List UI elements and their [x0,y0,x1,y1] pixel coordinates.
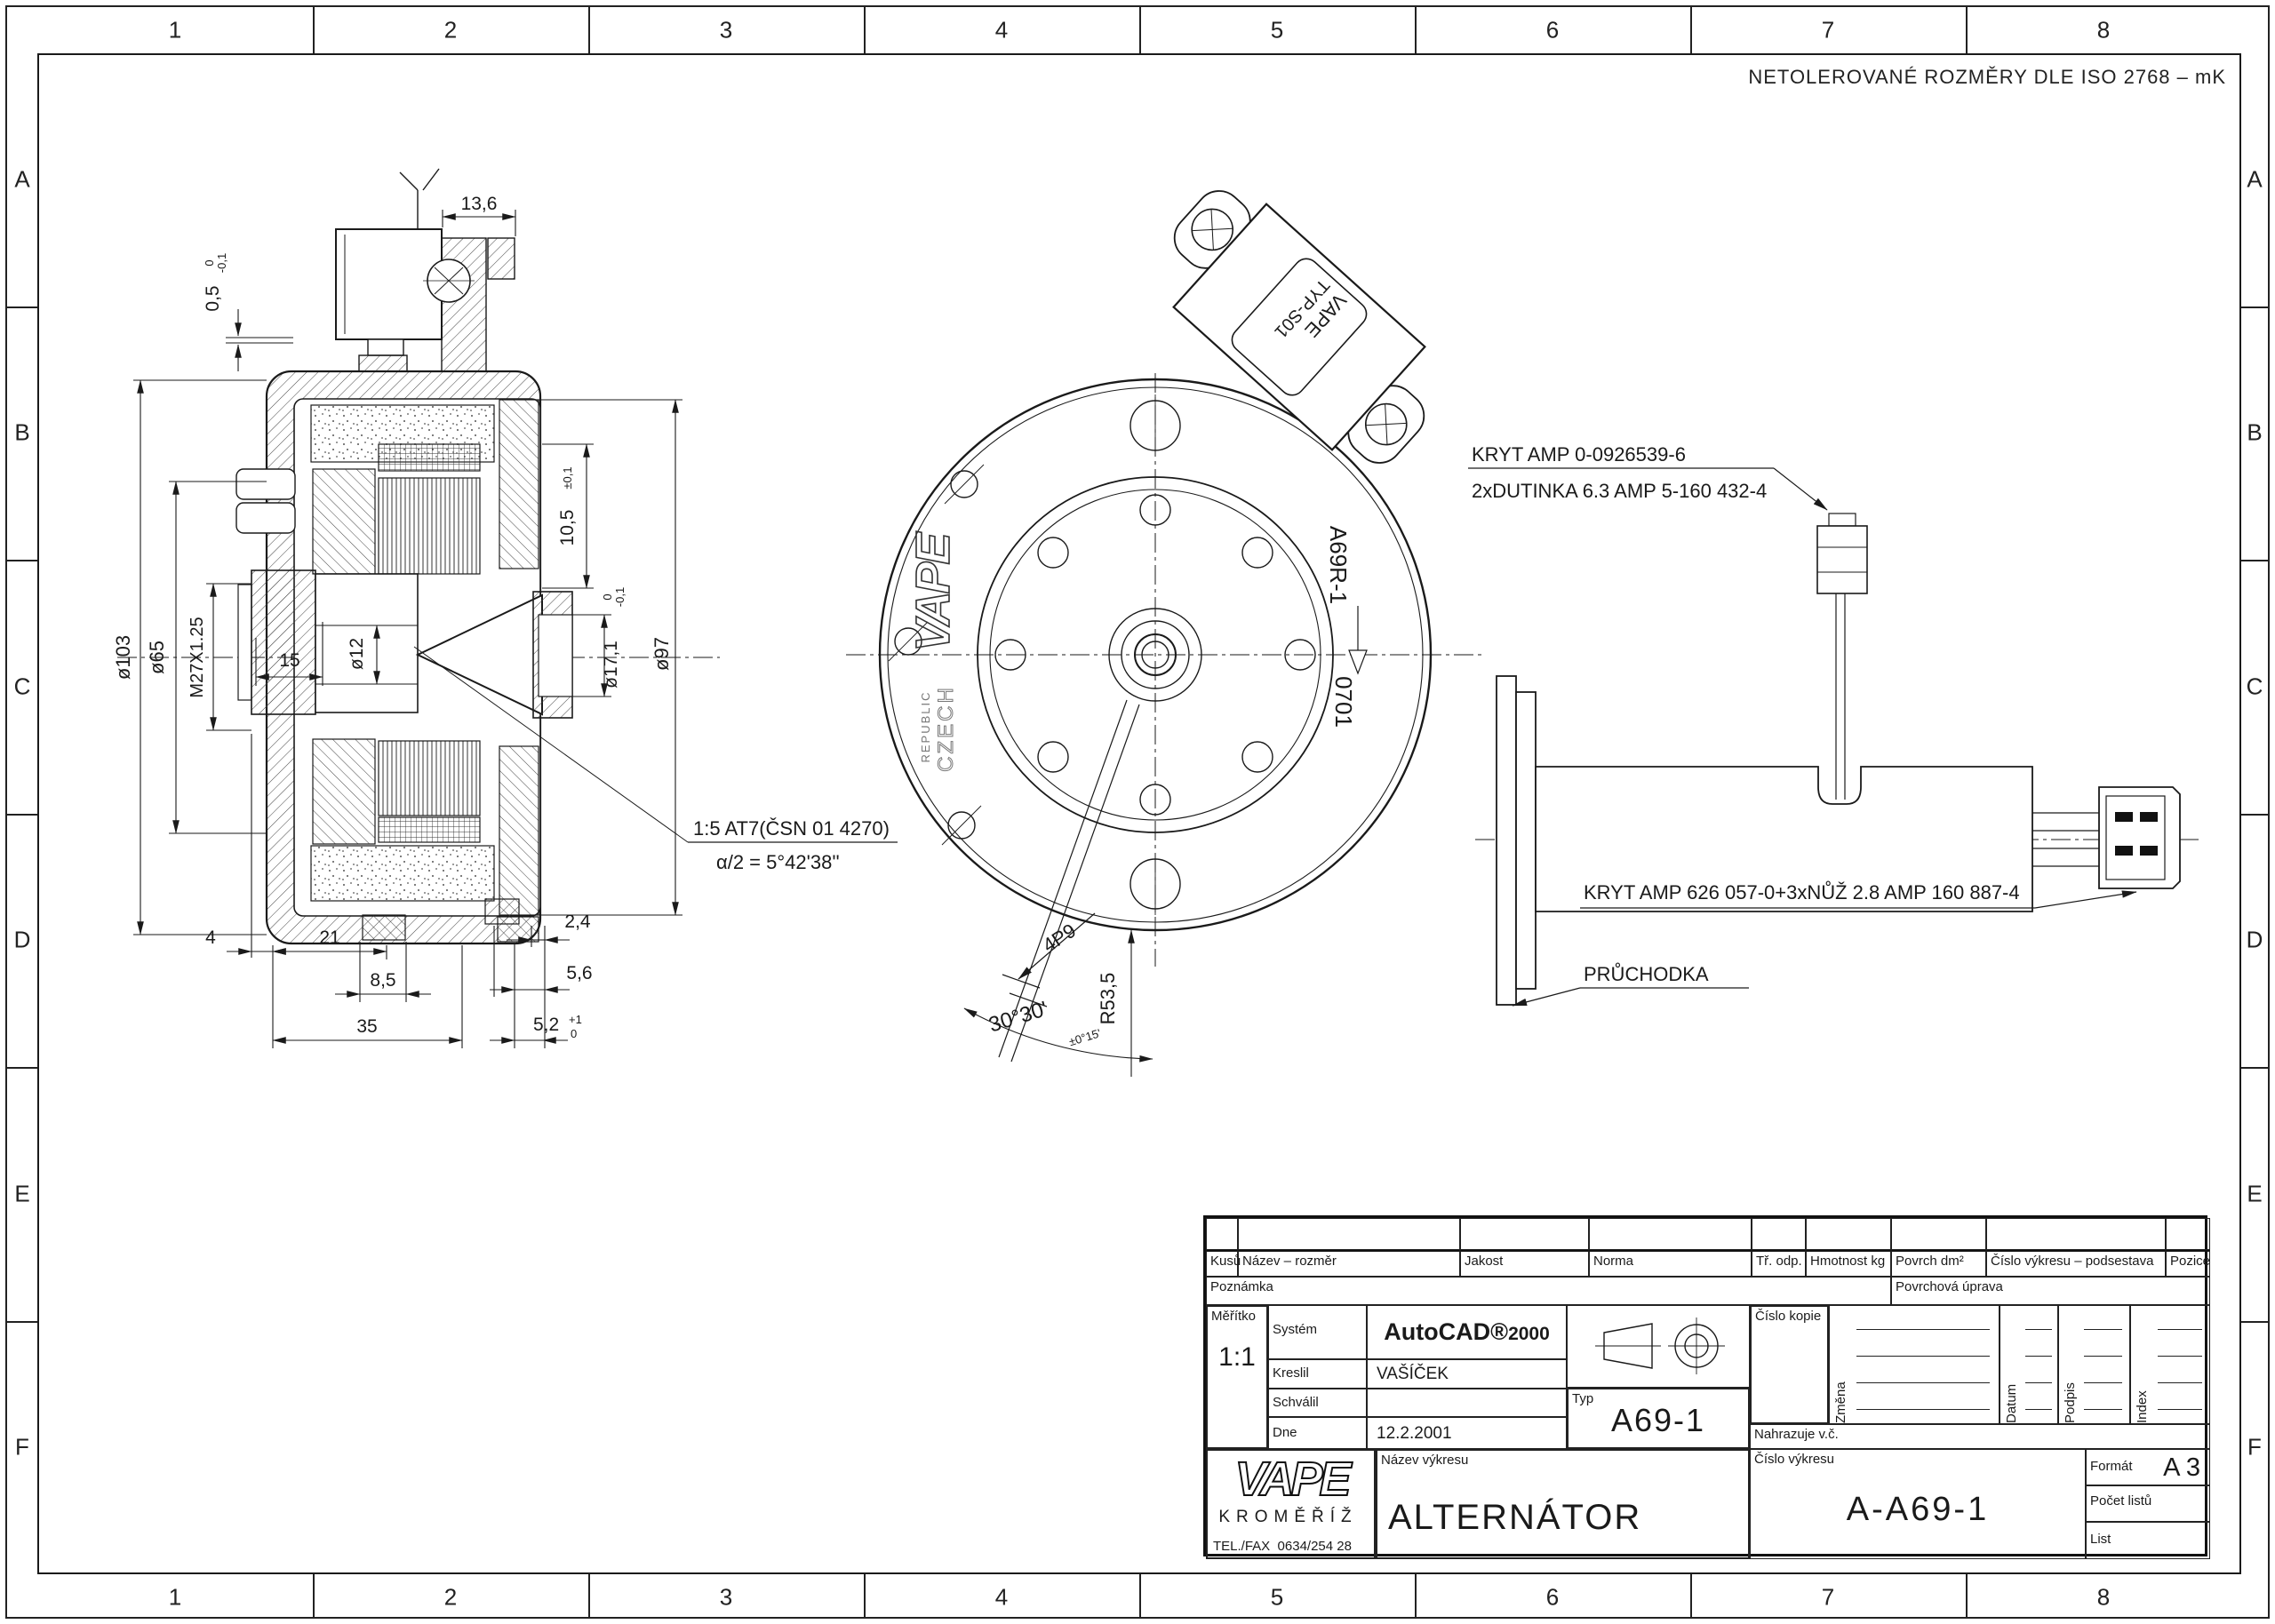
dim-4: 4 [205,927,216,948]
dim-21: 21 [319,927,339,948]
dim-17-hi: 0 [601,593,614,600]
tb-replaces-label: Nahrazuje v.č. [1754,1427,1839,1442]
tb-dwg-value: A-A69-1 [1751,1491,2085,1529]
rev-lines [2158,1329,2202,1410]
tb-format-value: A 3 [2163,1453,2200,1483]
pin-connector-small [1817,513,1867,800]
tb-header-tr-odp: Tř. odp. [1756,1254,1802,1269]
tb-header-pozice: Pozice [2170,1254,2210,1269]
dim-2-4: 2,4 [564,912,591,932]
tb-city: KROMĚŘÍŽ [1208,1508,1369,1527]
callout-grommet: PRŮCHODKA [1584,963,1709,985]
tb-copy-label: Číslo kopie [1755,1309,1821,1324]
tb-tel-value: 0634/254 28 [1278,1539,1352,1554]
dim-0-5-hi: 0 [203,259,216,266]
vape-logo-text: VAPE [1234,1453,1353,1506]
callout-leaders [1468,468,2136,1006]
tb-system-value: AutoCAD® [1384,1318,1508,1345]
tb-header-jakost: Jakost [1465,1254,1503,1269]
tb-header-povrch: Povrch dm² [1896,1254,1964,1269]
rev-lines [2084,1329,2122,1410]
vape-logo-casting: VAPE [906,530,960,651]
tb-date-value: 12.2.2001 [1377,1424,1452,1444]
dim-5-2-hi: +1 [569,1013,582,1026]
amp-connector [2099,787,2180,888]
tb-rev-col-datum: Datum [2004,1306,2019,1423]
tb-header-nazev: Název – rozměr [1242,1254,1337,1269]
taper-note-line1: 1:5 AT7(ČSN 01 4270) [693,817,890,840]
dim-angle-tol: ±0°15' [1067,1026,1102,1048]
tb-header-cislo-podsestava: Číslo výkresu – podsestava [1991,1254,2153,1269]
tb-header-hmotnost: Hmotnost kg [1810,1254,1885,1269]
tb-surface-label: Povrchová úprava [1896,1279,2003,1294]
dim-key-4p9: 4P9 [1039,919,1080,957]
dim-97: ø97 [651,637,673,671]
tb-name-value: ALTERNÁTOR [1388,1498,1641,1538]
grommet [1497,676,1536,1005]
tb-header-norma: Norma [1593,1254,1633,1269]
tb-date-label: Dne [1273,1425,1297,1440]
hub-boss [238,570,418,714]
section-view: 13,6 0,5 0 -0,1 ø103 ø65 M27X1.25 15 ø12… [112,169,898,1048]
front-view: VAPE TYP-S01 VAPE CZECH REPUBLIC A69R-1 … [846,170,1482,1077]
tb-tel-label: TEL./FAX [1213,1539,1270,1554]
drawing-sheet: 1 2 3 4 5 6 7 8 1 2 3 4 5 6 7 8 A B C D … [0,0,2275,1624]
taper-note-line2: α/2 = 5°42'38'' [716,851,840,873]
projection-symbol-icon [1570,1306,1748,1386]
tb-system-label: Systém [1273,1322,1317,1337]
tb-drawn-value: VAŠÍČEK [1377,1365,1449,1384]
tb-rev-col-index: Index [2135,1306,2150,1423]
rev-lines [1856,1329,1990,1410]
tb-header-kusu: Kusů [1210,1254,1241,1269]
dim-0-5: 0,5 [203,285,223,311]
callout-cover1-line2: 2xDUTINKA 6.3 AMP 5-160 432-4 [1472,480,1767,502]
tb-rev-col-zmena: Změna [1833,1306,1848,1423]
rev-lines [2025,1329,2052,1410]
dim-8-5: 8,5 [370,970,395,991]
marking-arrow-icon [1349,606,1367,673]
dim-5-6: 5,6 [566,963,592,983]
dim-10-5-tol: ±0,1 [561,466,574,489]
tb-scale-label: Měřítko [1211,1309,1256,1324]
regulator-block: VAPE TYP-S01 [1136,170,1464,484]
tb-scale-value: 1:1 [1208,1342,1266,1373]
tb-system-version: 2000 [1508,1324,1550,1344]
vape-logo: VAPE [1209,1453,1374,1508]
tb-dwg-label: Číslo výkresu [1754,1452,1834,1467]
dim-17-lo: -0,1 [613,587,627,607]
cast-code-marking: 0701 [1330,676,1357,728]
tb-name-label: Název výkresu [1381,1453,1468,1468]
tb-approved-label: Schválil [1273,1395,1319,1410]
dim-5-2-lo: 0 [571,1027,577,1040]
tb-rev-col-podpis: Podpis [2063,1306,2078,1423]
part-code-marking: A69R-1 [1325,526,1352,604]
mount-flange [442,238,515,371]
callout-cover1-line1: KRYT AMP 0-0926539-6 [1472,443,1686,466]
dim-12: ø12 [347,638,367,670]
dim-35: 35 [356,1016,377,1037]
dim-17-1: ø17,1 [601,641,621,689]
casting-text-czech: CZECH [934,685,958,772]
tb-drawn-label: Kreslil [1273,1365,1309,1381]
dim-m27: M27X1.25 [188,617,207,697]
dim-65: ø65 [146,641,168,674]
title-block: Kusů Název – rozměr Jakost Norma Tř. odp… [1203,1215,2207,1556]
casting-text-republic: REPUBLIC [919,690,932,762]
dim-10-5: 10,5 [557,510,578,546]
dim-5-2: 5,2 [533,1015,559,1035]
dim-15: 15 [279,650,299,671]
dim-0-5-lo: -0,1 [215,253,228,273]
tb-format-label: Formát [2090,1459,2133,1474]
front-dimensions [964,930,1153,1077]
tb-typ-value: A69-1 [1569,1402,1748,1439]
tb-list-label: List [2090,1532,2111,1547]
tb-sheets-label: Počet listů [2090,1493,2151,1509]
dim-103: ø103 [112,635,134,680]
tb-note-label: Poznámka [1210,1279,1273,1294]
dim-radius-r53-5: R53,5 [1097,973,1119,1025]
cable-assembly: KRYT AMP 0-0926539-6 2xDUTINKA 6.3 AMP 5… [1468,443,2199,1006]
dim-13-6: 13,6 [461,194,498,214]
callout-cover2: KRYT AMP 626 057-0+3xNŮŽ 2.8 AMP 160 887… [1584,881,2020,904]
brush-holder [336,169,442,371]
